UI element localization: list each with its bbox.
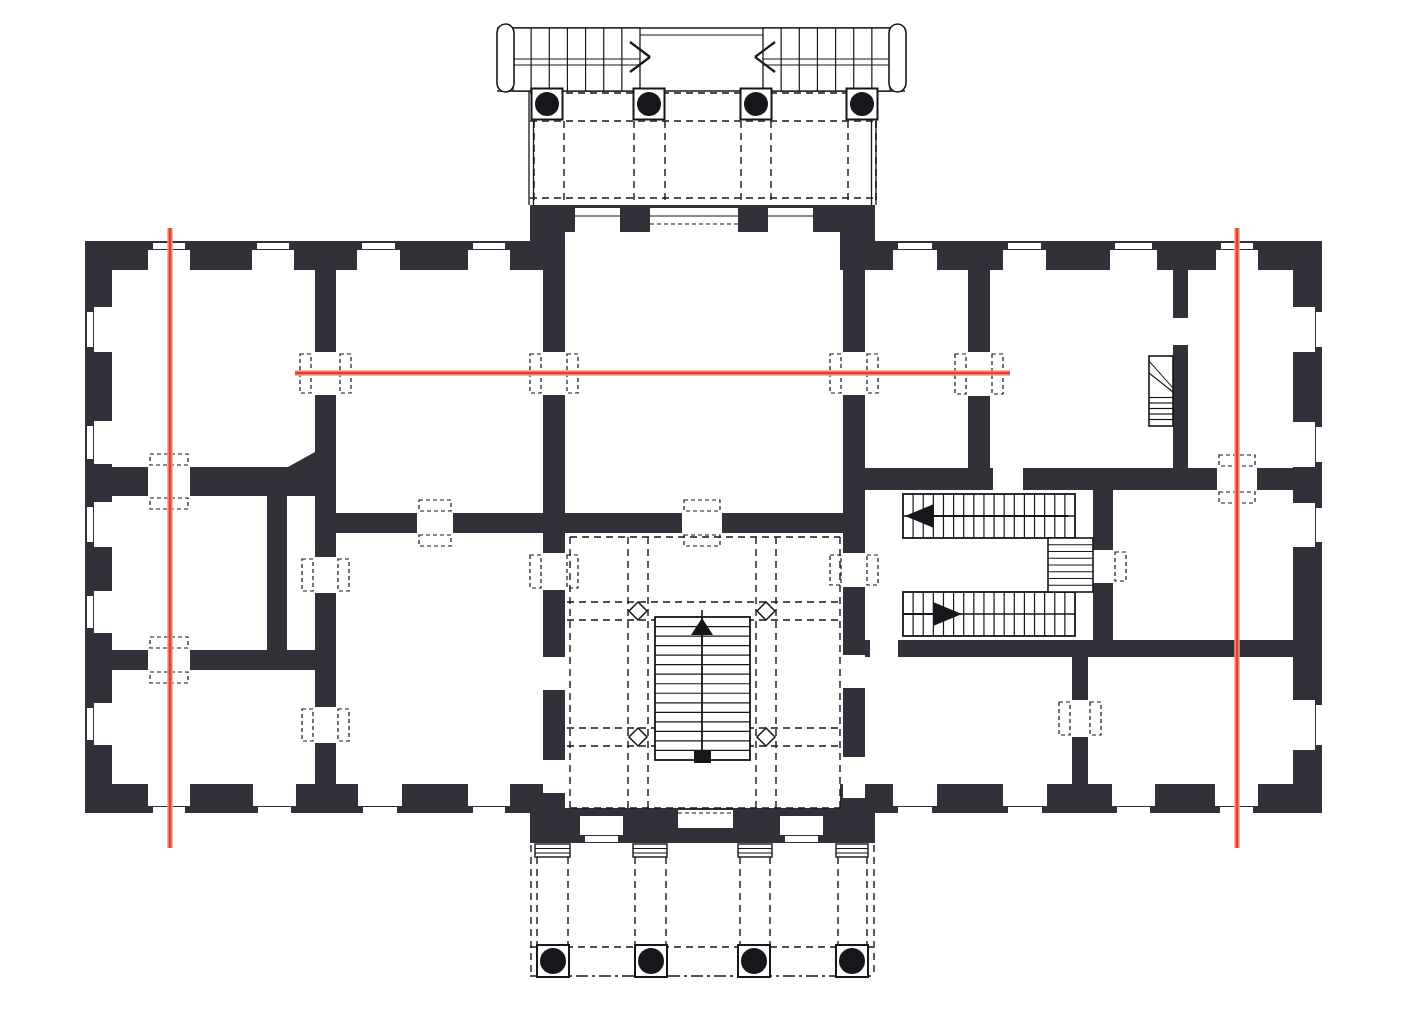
window-opening: [357, 250, 400, 270]
winder-stair: [1149, 356, 1173, 426]
window-sill: [363, 807, 397, 813]
chamfer-wall: [288, 452, 315, 496]
door-opening: [417, 513, 453, 533]
window-sill: [898, 243, 932, 249]
door-opening: [682, 513, 722, 533]
window-opening: [1293, 503, 1315, 547]
door-reveal-ticks: [1090, 702, 1101, 735]
door-opening: [543, 760, 565, 793]
window-sill: [1316, 705, 1322, 745]
door-reveal-ticks: [419, 500, 451, 511]
hall-north-opening-right: [768, 208, 813, 232]
window-opening: [94, 307, 112, 352]
window-sill: [1008, 243, 1041, 249]
window-opening: [94, 421, 112, 464]
window-sill: [1316, 427, 1322, 462]
window-sill: [1117, 807, 1150, 813]
window-sill: [257, 243, 289, 249]
window-opening: [358, 784, 402, 806]
window-opening: [1293, 700, 1315, 750]
column: [850, 92, 874, 116]
window-opening: [94, 502, 112, 547]
hall-north-opening-left: [575, 208, 620, 232]
door-opening: [1173, 318, 1188, 345]
closet-west-wall: [267, 490, 287, 663]
door-reveal-ticks: [567, 555, 578, 588]
door-reveal-ticks: [302, 709, 313, 741]
window-sill: [473, 243, 505, 249]
ne-room-west-wall: [1173, 270, 1188, 490]
stair-newel-right: [889, 24, 906, 92]
window-opening: [893, 250, 937, 270]
stair-newel-left: [497, 24, 514, 92]
column: [741, 948, 767, 974]
door-reveal-ticks: [338, 559, 349, 591]
window-sill: [87, 312, 93, 347]
door-opening: [870, 638, 898, 657]
door-opening: [315, 557, 336, 593]
window-opening: [1112, 784, 1155, 806]
window-opening: [468, 250, 510, 270]
window-opening: [893, 784, 937, 806]
door-opening: [993, 468, 1023, 490]
column: [638, 948, 664, 974]
ceiling-boss-diamond: [629, 728, 647, 746]
window-sill: [585, 836, 618, 842]
door-opening: [1072, 700, 1088, 737]
hall-east-wall: [843, 205, 865, 808]
left-mid-south-wall: [112, 650, 333, 670]
window-sill: [1316, 508, 1322, 542]
window-opening: [94, 591, 112, 633]
column: [637, 92, 661, 116]
entrance-step: [633, 844, 667, 857]
window-opening: [1003, 784, 1047, 806]
door-opening: [543, 657, 565, 690]
window-sill: [1115, 243, 1152, 249]
window-opening: [1293, 307, 1315, 352]
door-opening: [843, 655, 865, 688]
door-reveal-ticks: [867, 555, 878, 585]
garden-south-opening-left: [580, 816, 623, 835]
door-opening: [843, 553, 865, 587]
window-sill: [87, 426, 93, 459]
door-opening: [843, 757, 865, 798]
window-opening: [1110, 250, 1157, 270]
door-opening: [315, 707, 336, 743]
door-opening: [543, 553, 565, 590]
window-sill: [362, 243, 395, 249]
window-sill: [258, 807, 291, 813]
door-reveal-ticks: [1059, 702, 1070, 735]
door-reveal-ticks: [1115, 552, 1126, 581]
hall-west-wall: [543, 205, 565, 808]
window-opening: [1003, 250, 1046, 270]
entrance-step: [836, 844, 868, 857]
door-reveal-ticks: [338, 709, 349, 741]
stairhall-south-wall: [845, 640, 1293, 657]
column: [744, 92, 768, 116]
door-reveal-ticks: [830, 555, 841, 585]
window-sill: [785, 836, 818, 842]
window-sill: [898, 807, 932, 813]
floor-plan: [0, 0, 1422, 1024]
ceiling-boss-diamond: [629, 602, 647, 620]
door-opening: [1093, 550, 1113, 583]
entrance-step: [738, 844, 772, 857]
stair-newel-base: [694, 751, 711, 763]
room-a-south-wall: [112, 467, 290, 496]
floor-plan-canvas: [0, 0, 1422, 1024]
window-sill: [87, 596, 93, 628]
window-opening: [94, 703, 112, 745]
window-opening: [252, 250, 294, 270]
entrance-step: [535, 844, 570, 857]
window-opening: [468, 784, 510, 806]
door-reveal-ticks: [684, 500, 720, 511]
door-reveal-ticks: [419, 535, 451, 546]
garden-south-opening-right: [780, 816, 823, 835]
column: [839, 948, 865, 974]
window-sill: [1316, 312, 1322, 347]
ceiling-boss-diamond: [757, 728, 775, 746]
hall-north-opening-center: [650, 208, 738, 232]
door-reveal-ticks: [302, 559, 313, 591]
window-sill: [1008, 807, 1042, 813]
door-reveal-ticks: [530, 555, 541, 588]
window-sill: [87, 507, 93, 542]
window-opening: [253, 784, 296, 806]
ceiling-boss-diamond: [757, 602, 775, 620]
column: [535, 92, 559, 116]
window-sill: [473, 807, 505, 813]
window-sill: [87, 708, 93, 740]
column: [540, 948, 566, 974]
window-opening: [1293, 422, 1315, 467]
